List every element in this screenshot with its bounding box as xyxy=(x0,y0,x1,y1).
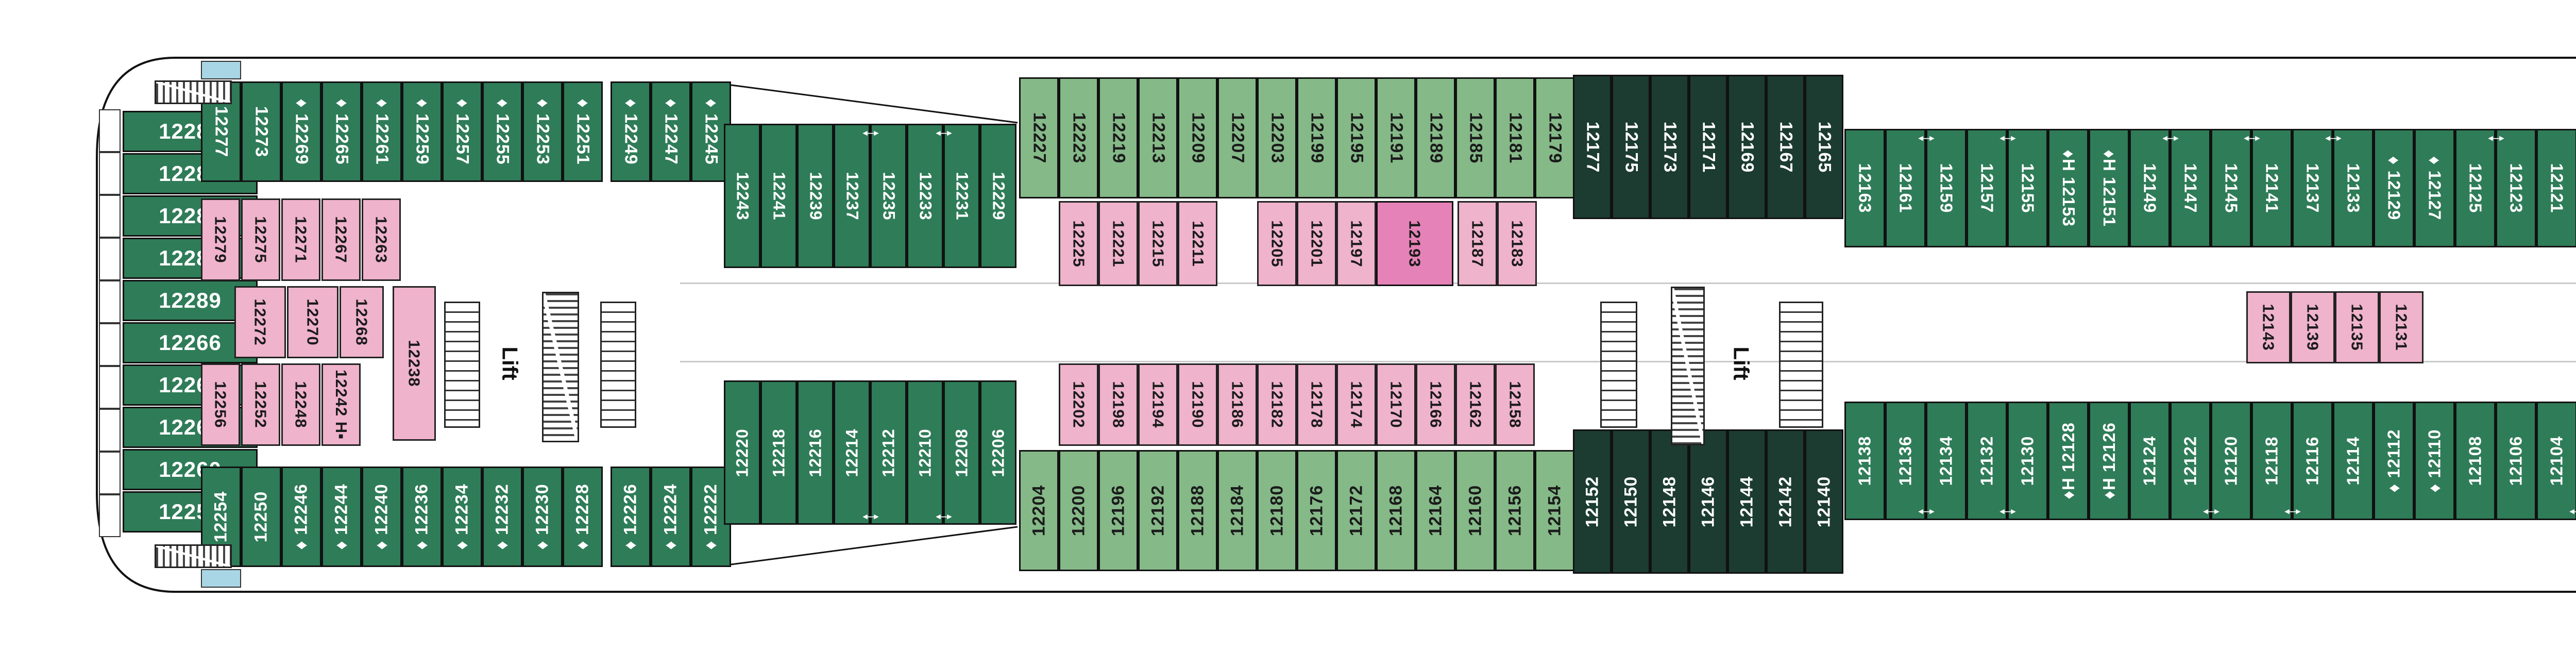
cabin-12205[interactable]: 12205 xyxy=(1257,201,1297,286)
cabin-12125[interactable]: 12125 xyxy=(2455,129,2496,247)
cabin-12240[interactable]: ♦ 12240 xyxy=(362,467,402,567)
cabin-12126[interactable]: ♦H 12126 xyxy=(2089,402,2129,520)
cabin-12121[interactable]: 12121 xyxy=(2536,129,2576,247)
cabin-12269[interactable]: ♦ 12269 xyxy=(281,81,321,182)
cabin-12223[interactable]: 12223 xyxy=(1059,77,1098,198)
cabin-12203[interactable]: 12203 xyxy=(1257,77,1297,198)
lift-label: Lift xyxy=(489,325,531,402)
cabin-12214[interactable]: 12214 xyxy=(834,380,870,525)
cabin-12165[interactable]: 12165 xyxy=(1805,75,1843,219)
elevator-bank-icon xyxy=(1600,302,1637,428)
cabin-12275[interactable]: 12275 xyxy=(241,198,280,281)
cabin-12145[interactable]: 12145 xyxy=(2211,129,2251,247)
cabin-12273[interactable]: 12273 xyxy=(241,81,281,182)
cabin-12215[interactable]: 12215 xyxy=(1138,201,1178,286)
cabin-12186[interactable]: 12186 xyxy=(1217,363,1257,446)
cabin-12172[interactable]: 12172 xyxy=(1336,450,1376,571)
cabin-12194[interactable]: 12194 xyxy=(1138,363,1178,446)
cabin-12265[interactable]: ♦ 12265 xyxy=(321,81,362,182)
cabin-12249[interactable]: ♦ 12249 xyxy=(611,81,651,182)
aft-balcony-dividers xyxy=(99,109,121,537)
cabin-12234[interactable]: ♦ 12234 xyxy=(442,467,482,567)
cabin-12259[interactable]: ♦ 12259 xyxy=(402,81,442,182)
cabin-12256[interactable]: 12256 xyxy=(201,363,240,446)
cabin-12235[interactable]: 12235 xyxy=(870,124,907,268)
cabin-12178[interactable]: 12178 xyxy=(1297,363,1336,446)
cabin-12140[interactable]: 12140 xyxy=(1805,429,1843,574)
cabin-12204[interactable]: 12204 xyxy=(1019,450,1059,571)
cabin-12216[interactable]: 12216 xyxy=(797,380,834,525)
cabin-12110[interactable]: ♦ 12110 xyxy=(2414,402,2455,520)
cabin-12221[interactable]: 12221 xyxy=(1098,201,1138,286)
cabin-12209[interactable]: 12209 xyxy=(1178,77,1217,198)
cabin-12137[interactable]: 12137 xyxy=(2292,129,2333,247)
cabin-12219[interactable]: 12219 xyxy=(1098,77,1138,198)
cabin-12164[interactable]: 12164 xyxy=(1416,450,1455,571)
cabin-12211[interactable]: 12211 xyxy=(1178,201,1217,286)
elevator-bank-icon xyxy=(600,302,636,428)
cabin-12243[interactable]: 12243 xyxy=(724,124,760,268)
cabin-12153[interactable]: ♦H 12153 xyxy=(2048,129,2089,247)
cabin-12272[interactable]: 12272 xyxy=(234,286,286,358)
cabin-12263[interactable]: 12263 xyxy=(362,198,401,281)
cabin-12139[interactable]: 12139 xyxy=(2291,291,2335,363)
cabin-12147[interactable]: 12147 xyxy=(2170,129,2211,247)
cabin-12267[interactable]: 12267 xyxy=(321,198,361,281)
cabin-12162[interactable]: 12162 xyxy=(1455,363,1495,446)
cabin-12166[interactable]: 12166 xyxy=(1416,363,1455,446)
cabin-12228[interactable]: ♦ 12228 xyxy=(563,467,603,567)
cabin-12184[interactable]: 12184 xyxy=(1217,450,1257,571)
cabin-12124[interactable]: 12124 xyxy=(2129,402,2170,520)
cabin-12225[interactable]: 12225 xyxy=(1059,201,1098,286)
cabin-12181[interactable]: 12181 xyxy=(1495,77,1535,198)
cabin-12279[interactable]: 12279 xyxy=(201,198,240,281)
cabin-12207[interactable]: 12207 xyxy=(1217,77,1257,198)
cabin-12232[interactable]: ♦ 12232 xyxy=(482,467,522,567)
cabin-12175[interactable]: 12175 xyxy=(1612,75,1650,219)
cabin-12128[interactable]: ♦H 12128 xyxy=(2048,402,2089,520)
cabin-12244[interactable]: ♦ 12244 xyxy=(321,467,362,567)
elevator-bank-icon xyxy=(1779,302,1823,428)
cabin-12255[interactable]: ♦ 12255 xyxy=(482,81,522,182)
cabin-12198[interactable]: 12198 xyxy=(1098,363,1138,446)
cabin-12160[interactable]: 12160 xyxy=(1455,450,1495,571)
cabin-12136[interactable]: 12136 xyxy=(1885,402,1926,520)
cabin-12148[interactable]: 12148 xyxy=(1650,429,1689,574)
cabin-12206[interactable]: 12206 xyxy=(980,380,1016,525)
cabin-12173[interactable]: 12173 xyxy=(1650,75,1689,219)
cabin-12202[interactable]: 12202 xyxy=(1059,363,1098,446)
cabin-12177[interactable]: 12177 xyxy=(1573,75,1612,219)
cabin-12193[interactable]: 12193 xyxy=(1376,201,1453,286)
cabin-12238[interactable]: 12238 xyxy=(393,286,436,441)
cabin-12174[interactable]: 12174 xyxy=(1336,363,1376,446)
cabin-12170[interactable]: 12170 xyxy=(1376,363,1416,446)
cabin-12237[interactable]: 12237 xyxy=(834,124,870,268)
cabin-12200[interactable]: 12200 xyxy=(1059,450,1098,571)
cabin-12155[interactable]: 12155 xyxy=(2007,129,2048,247)
cabin-12169[interactable]: 12169 xyxy=(1727,75,1766,219)
cabin-12187[interactable]: 12187 xyxy=(1458,201,1497,286)
cabin-12182[interactable]: 12182 xyxy=(1257,363,1297,446)
lift-label: Lift xyxy=(1721,325,1762,402)
stairs-icon xyxy=(155,544,232,568)
cabin-12224[interactable]: ♦ 12224 xyxy=(651,467,691,567)
cabin-12233[interactable]: 12233 xyxy=(907,124,943,268)
stairs-icon xyxy=(542,292,579,442)
cabin-12212[interactable]: 12212 xyxy=(870,380,907,525)
cabin-12167[interactable]: 12167 xyxy=(1766,75,1805,219)
cabin-12213[interactable]: 12213 xyxy=(1138,77,1178,198)
blue-category-strip xyxy=(201,569,241,588)
cabin-12104[interactable]: 12104 xyxy=(2536,402,2576,520)
cabin-12138[interactable]: 12138 xyxy=(1844,402,1885,520)
cabin-12161[interactable]: 12161 xyxy=(1885,129,1926,247)
cabin-12168[interactable]: 12168 xyxy=(1376,450,1416,571)
cabin-12190[interactable]: 12190 xyxy=(1178,363,1217,446)
cabin-12180[interactable]: 12180 xyxy=(1257,450,1297,571)
cabin-12163[interactable]: 12163 xyxy=(1844,129,1885,247)
blue-category-strip xyxy=(201,61,241,79)
cabin-12156[interactable]: 12156 xyxy=(1495,450,1535,571)
cabin-12250[interactable]: 12250 xyxy=(241,467,281,567)
cabin-12108[interactable]: 12108 xyxy=(2455,402,2496,520)
cabin-12171[interactable]: 12171 xyxy=(1689,75,1727,219)
cabin-12176[interactable]: 12176 xyxy=(1297,450,1336,571)
cabin-12120[interactable]: 12120 xyxy=(2211,402,2251,520)
cabin-12192[interactable]: 12192 xyxy=(1138,450,1178,571)
cabin-12133[interactable]: 12133 xyxy=(2333,129,2374,247)
cabin-12179[interactable]: 12179 xyxy=(1535,77,1574,198)
cabin-12112[interactable]: ♦ 12112 xyxy=(2374,402,2414,520)
cabin-12130[interactable]: 12130 xyxy=(2007,402,2048,520)
cabin-12149[interactable]: 12149 xyxy=(2129,129,2170,247)
deck-plan-canvas: 1228112283122851228712289122661226412262… xyxy=(0,0,2576,649)
cabin-12127[interactable]: ♦ 12127 xyxy=(2414,129,2455,247)
cabin-12236[interactable]: ♦ 12236 xyxy=(402,467,442,567)
cabin-12152[interactable]: 12152 xyxy=(1573,429,1612,574)
cabin-12227[interactable]: 12227 xyxy=(1019,77,1059,198)
cabin-12199[interactable]: 12199 xyxy=(1297,77,1336,198)
cabin-12268[interactable]: 12268 xyxy=(340,286,384,358)
cabin-12196[interactable]: 12196 xyxy=(1098,450,1138,571)
cabin-12158[interactable]: 12158 xyxy=(1495,363,1535,446)
cabin-12257[interactable]: ♦ 12257 xyxy=(442,81,482,182)
cabin-12123[interactable]: 12123 xyxy=(2496,129,2536,247)
cabin-12247[interactable]: ♦ 12247 xyxy=(651,81,691,182)
cabin-12131[interactable]: 12131 xyxy=(2379,291,2424,363)
cabin-12129[interactable]: ♦ 12129 xyxy=(2374,129,2414,247)
cabin-12114[interactable]: 12114 xyxy=(2333,402,2374,520)
cabin-12142[interactable]: 12142 xyxy=(1766,429,1805,574)
cabin-12141[interactable]: 12141 xyxy=(2251,129,2292,247)
cabin-12191[interactable]: 12191 xyxy=(1376,77,1416,198)
cabin-12150[interactable]: 12150 xyxy=(1612,429,1650,574)
cabin-12230[interactable]: ♦ 12230 xyxy=(522,467,563,567)
cabin-12231[interactable]: 12231 xyxy=(943,124,980,268)
cabin-12239[interactable]: 12239 xyxy=(797,124,834,268)
cabin-12246[interactable]: ♦ 12246 xyxy=(281,467,321,567)
cabin-12188[interactable]: 12188 xyxy=(1178,450,1217,571)
cabin-12106[interactable]: 12106 xyxy=(2496,402,2536,520)
cabin-12241[interactable]: 12241 xyxy=(760,124,797,268)
cabin-12252[interactable]: 12252 xyxy=(241,363,280,446)
cabin-12242[interactable]: 12242 H▪ xyxy=(321,363,361,446)
cabin-12208[interactable]: 12208 xyxy=(943,380,980,525)
cabin-12185[interactable]: 12185 xyxy=(1455,77,1495,198)
cabin-12189[interactable]: 12189 xyxy=(1416,77,1455,198)
cabin-12143[interactable]: 12143 xyxy=(2246,291,2291,363)
cabin-12122[interactable]: 12122 xyxy=(2170,402,2211,520)
cabin-12154[interactable]: 12154 xyxy=(1535,450,1574,571)
elevator-bank-icon xyxy=(444,302,480,428)
cabin-12210[interactable]: 12210 xyxy=(907,380,943,525)
cabin-12144[interactable]: 12144 xyxy=(1727,429,1766,574)
cabin-12151[interactable]: ♦H 12151 xyxy=(2089,129,2129,247)
cabin-12116[interactable]: 12116 xyxy=(2292,402,2333,520)
cabin-12218[interactable]: 12218 xyxy=(760,380,797,525)
cabin-12229[interactable]: 12229 xyxy=(980,124,1016,268)
cabin-12159[interactable]: 12159 xyxy=(1926,129,1967,247)
cabin-12195[interactable]: 12195 xyxy=(1336,77,1376,198)
cabin-12253[interactable]: ♦ 12253 xyxy=(522,81,563,182)
corridor-wall xyxy=(680,282,2576,284)
cabin-12146[interactable]: 12146 xyxy=(1689,429,1727,574)
stairs-icon xyxy=(1671,287,1705,445)
cabin-12201[interactable]: 12201 xyxy=(1297,201,1336,286)
cabin-12157[interactable]: 12157 xyxy=(1967,129,2007,247)
cabin-12183[interactable]: 12183 xyxy=(1497,201,1537,286)
cabin-12220[interactable]: 12220 xyxy=(724,380,760,525)
cabin-12270[interactable]: 12270 xyxy=(287,286,338,358)
cabin-12135[interactable]: 12135 xyxy=(2335,291,2379,363)
cabin-12226[interactable]: ♦ 12226 xyxy=(611,467,651,567)
cabin-12132[interactable]: 12132 xyxy=(1967,402,2007,520)
cabin-12251[interactable]: ♦ 12251 xyxy=(563,81,603,182)
cabin-12261[interactable]: ♦ 12261 xyxy=(362,81,402,182)
stairs-icon xyxy=(155,80,232,104)
cabin-12271[interactable]: 12271 xyxy=(281,198,320,281)
cabin-12248[interactable]: 12248 xyxy=(281,363,320,446)
cabin-12118[interactable]: 12118 xyxy=(2251,402,2292,520)
cabin-12134[interactable]: 12134 xyxy=(1926,402,1967,520)
cabin-12197[interactable]: 12197 xyxy=(1336,201,1376,286)
